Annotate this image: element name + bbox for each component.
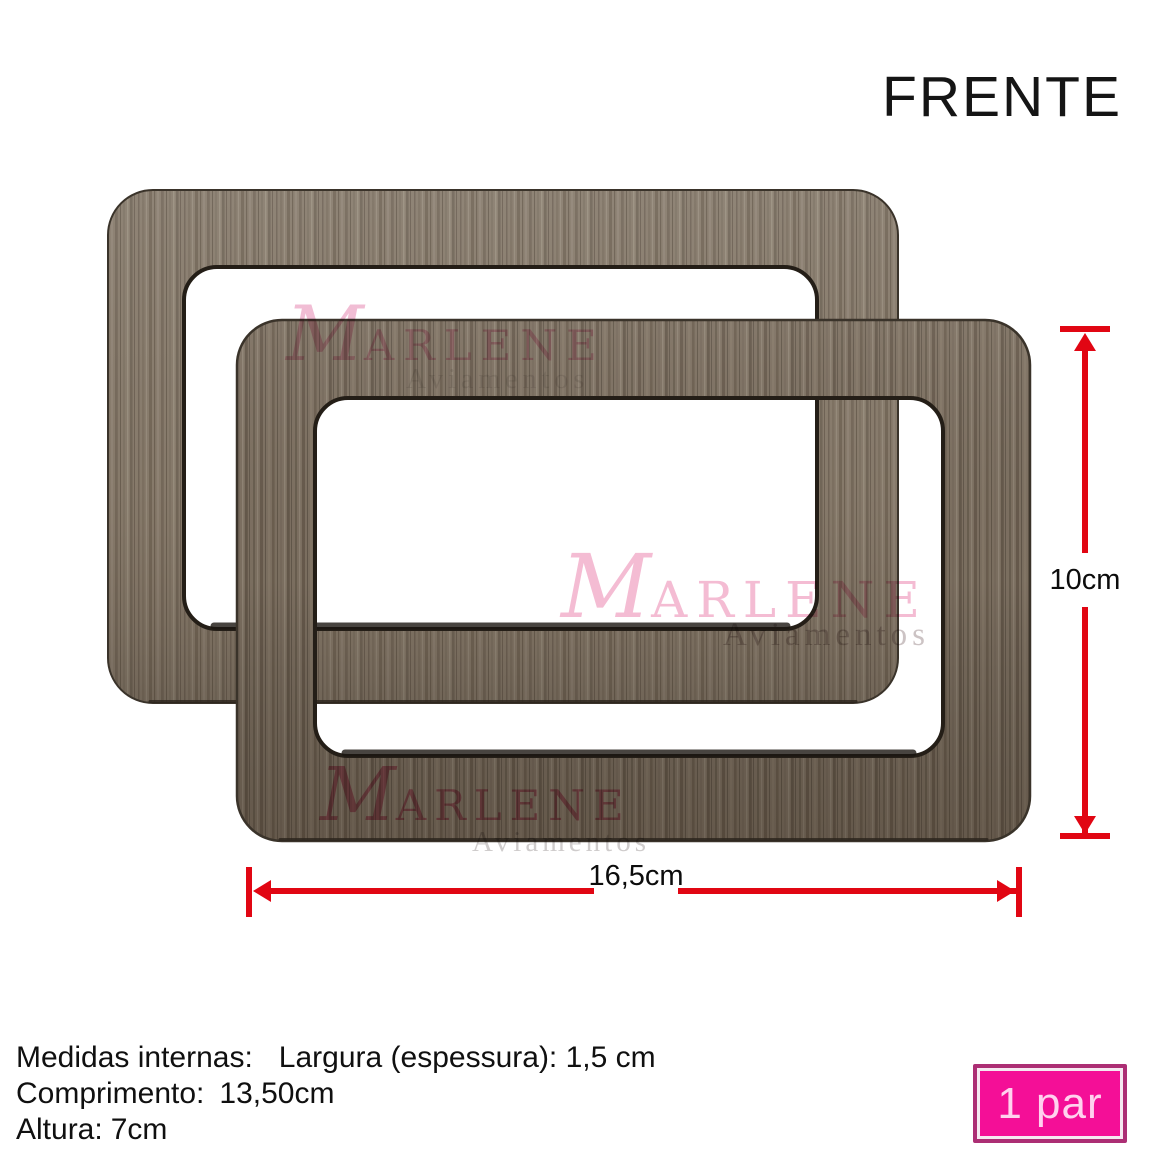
- arrow-down-icon: [1074, 816, 1096, 834]
- dimension-line-horizontal-right: [678, 888, 1016, 894]
- internal-measurements-block: Medidas internas:Largura (espessura): 1,…: [16, 1040, 656, 1148]
- brand-subtitle: Aviamentos: [723, 619, 930, 652]
- arrow-right-icon: [997, 880, 1015, 902]
- quantity-badge-label: 1 par: [997, 1079, 1102, 1129]
- watermark-logo-top: MARLENE Aviamentos: [286, 296, 606, 394]
- dimension-line-horizontal-left: [269, 888, 594, 894]
- spec-value: 13,50cm: [219, 1077, 334, 1110]
- brand-initial: M: [320, 752, 396, 838]
- dimension-line-vertical-upper: [1082, 340, 1088, 553]
- spec-label: Medidas internas:: [16, 1041, 253, 1074]
- spec-line-length: Comprimento:13,50cm: [16, 1076, 656, 1112]
- brand-initial: M: [286, 289, 364, 378]
- spec-line-height: Altura:7cm: [16, 1112, 656, 1148]
- dimension-cap-bottom: [1060, 833, 1110, 839]
- brand-initial: M: [561, 535, 651, 638]
- height-label: 10cm: [1030, 564, 1140, 597]
- brand-name: ARLENE: [364, 321, 606, 370]
- watermark-logo-middle: MARLENE Aviamentos: [561, 543, 930, 652]
- dimension-cap-left: [246, 867, 252, 917]
- dimension-line-vertical-lower: [1082, 607, 1088, 835]
- spec-label: Altura:: [16, 1113, 103, 1146]
- watermark-logo-bottom: MARLENE Aviamentos: [320, 758, 650, 857]
- page-title: FRENTE: [882, 64, 1122, 130]
- quantity-badge: 1 par: [973, 1064, 1127, 1143]
- spec-line-internal: Medidas internas:Largura (espessura): 1,…: [16, 1040, 656, 1076]
- brand-name: ARLENE: [396, 781, 632, 830]
- product-photo-canvas: MARLENE Aviamentos MARLENE Aviamentos MA…: [0, 0, 1160, 1160]
- brand-subtitle: Aviamentos: [472, 828, 650, 857]
- spec-label: Comprimento:: [16, 1077, 204, 1110]
- dimension-cap-right: [1016, 867, 1022, 917]
- spec-value: Largura (espessura): 1,5 cm: [279, 1041, 656, 1074]
- spec-value: 7cm: [111, 1113, 168, 1146]
- brand-subtitle: Aviamentos: [406, 366, 606, 394]
- dimension-cap-top: [1060, 326, 1110, 332]
